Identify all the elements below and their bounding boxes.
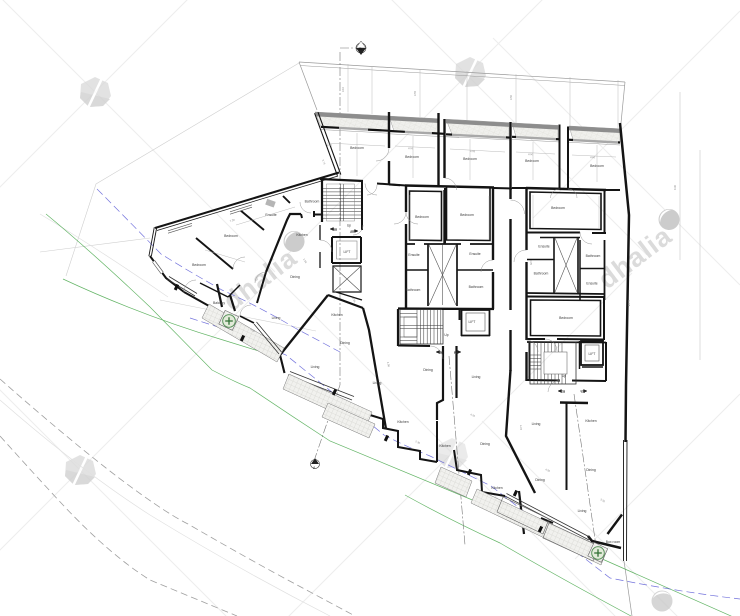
svg-text:Dining: Dining [535, 478, 545, 482]
svg-text:LIFT: LIFT [589, 352, 596, 356]
svg-text:Bedroom: Bedroom [525, 159, 539, 163]
svg-text:Up: Up [562, 374, 566, 378]
svg-text:9.30: 9.30 [673, 184, 677, 190]
svg-text:Bathroom: Bathroom [586, 254, 601, 258]
svg-text:3.55: 3.55 [413, 90, 417, 96]
svg-text:Dining: Dining [290, 275, 300, 279]
svg-text:Bedroom: Bedroom [192, 263, 206, 267]
svg-text:Living: Living [311, 365, 320, 369]
svg-text:Ensuite: Ensuite [586, 282, 597, 286]
svg-text:Bathroom: Bathroom [534, 272, 549, 276]
svg-text:Ensuite: Ensuite [469, 252, 480, 256]
svg-text:Bedroom: Bedroom [405, 155, 419, 159]
svg-text:Bathroom: Bathroom [305, 200, 320, 204]
svg-text:LIFT: LIFT [469, 320, 476, 324]
svg-text:Bedroom: Bedroom [224, 234, 238, 238]
svg-text:3.60: 3.60 [590, 155, 596, 159]
svg-text:Bathroom: Bathroom [469, 285, 484, 289]
svg-text:Balcony: Balcony [213, 301, 225, 305]
svg-text:4.30: 4.30 [327, 143, 333, 147]
svg-text:C8: C8 [561, 390, 565, 394]
svg-text:Bedroom: Bedroom [460, 213, 474, 217]
svg-text:Ensuite: Ensuite [408, 253, 419, 257]
svg-text:B: B [359, 46, 362, 51]
svg-text:Bedroom: Bedroom [551, 206, 565, 210]
svg-text:3.50: 3.50 [509, 94, 513, 100]
svg-text:A8: A8 [333, 228, 337, 232]
svg-text:Living: Living [272, 316, 281, 320]
svg-text:Living: Living [532, 422, 541, 426]
svg-text:Kitchen: Kitchen [397, 420, 408, 424]
svg-text:Bedroom: Bedroom [415, 215, 429, 219]
svg-text:Kitchen: Kitchen [491, 486, 502, 490]
svg-text:Dining: Dining [340, 341, 350, 345]
svg-text:Living: Living [472, 375, 481, 379]
svg-text:Dining: Dining [586, 468, 596, 472]
svg-text:Kitchen: Kitchen [331, 313, 342, 317]
svg-text:Box room: Box room [606, 540, 621, 544]
svg-text:Ensuite: Ensuite [538, 245, 549, 249]
svg-text:Kitchen: Kitchen [585, 419, 596, 423]
svg-text:Dining: Dining [480, 442, 490, 446]
svg-text:LIFT: LIFT [344, 250, 351, 254]
svg-text:Dining: Dining [423, 368, 433, 372]
svg-text:11.55: 11.55 [627, 300, 631, 307]
svg-text:B8: B8 [454, 351, 458, 355]
svg-text:4.93: 4.93 [519, 425, 523, 431]
svg-text:C8: C8 [581, 390, 585, 394]
svg-text:Bedroom: Bedroom [559, 316, 573, 320]
svg-text:3.95: 3.95 [529, 260, 533, 266]
svg-text:Bathroom: Bathroom [406, 288, 421, 292]
svg-text:Kitchen: Kitchen [296, 233, 307, 237]
svg-text:Living: Living [373, 381, 382, 385]
svg-text:Ensuite: Ensuite [265, 213, 276, 217]
svg-text:Living: Living [578, 509, 587, 513]
svg-text:Kitchen: Kitchen [439, 444, 450, 448]
svg-text:Up: Up [444, 333, 448, 337]
svg-text:Up: Up [347, 224, 351, 228]
svg-text:B8: B8 [439, 351, 443, 355]
svg-text:4.05: 4.05 [470, 149, 476, 153]
svg-text:A8: A8 [350, 230, 354, 234]
svg-text:3.10: 3.10 [341, 86, 345, 92]
